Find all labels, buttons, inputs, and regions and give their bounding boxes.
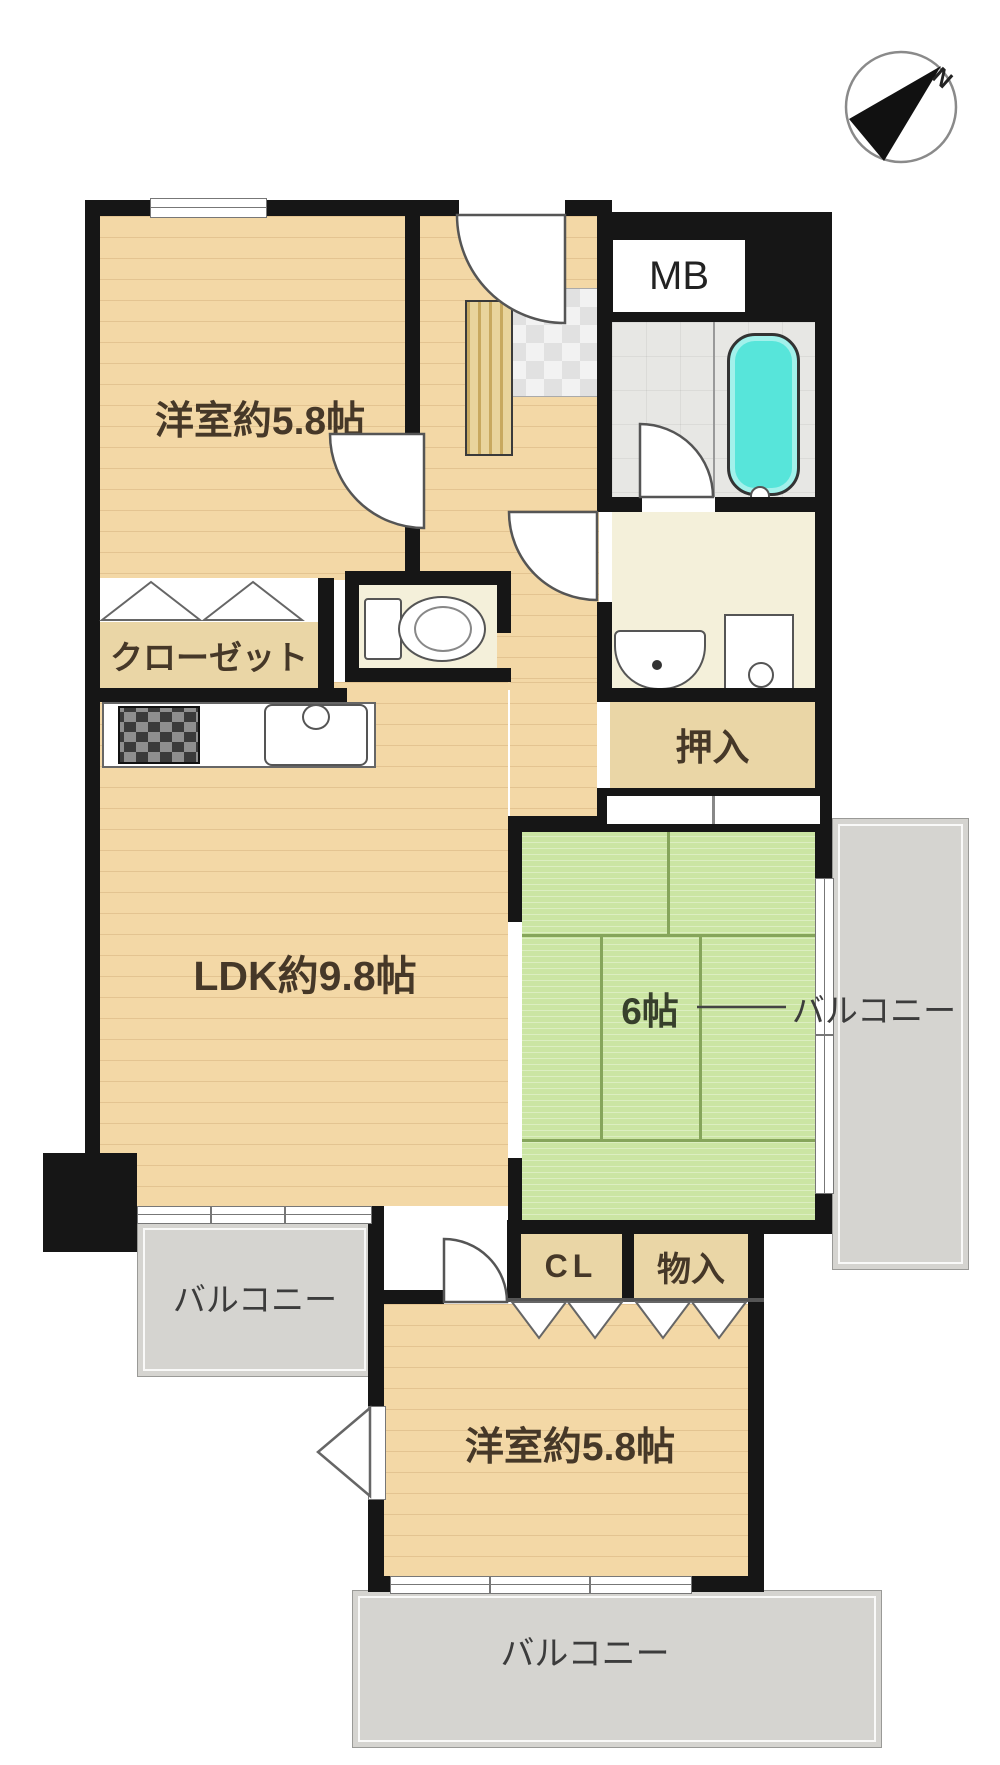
compass-needle (849, 66, 941, 161)
window-tatami-balcony (815, 878, 834, 1194)
toilet-tank (364, 598, 402, 660)
wall (597, 322, 612, 512)
room-storage-label: 物入 (634, 1234, 748, 1298)
compass-circle (846, 52, 956, 162)
balcony-bottom-label: バルコニー (420, 1625, 750, 1675)
tatami-grid-line (699, 935, 702, 1141)
washing-machine-drain (748, 662, 774, 688)
wall (508, 816, 610, 832)
bathtub (727, 333, 800, 496)
wall (690, 1576, 764, 1592)
wall (748, 1220, 764, 1592)
tatami-grid-line (522, 1139, 815, 1142)
room-oshiire-label: 押入 (610, 700, 815, 788)
wall (597, 602, 612, 690)
balcony-left-label: バルコニー (145, 1272, 365, 1322)
room-cl-label: CL (520, 1234, 622, 1298)
wall (100, 1206, 140, 1222)
fusuma-divider (712, 796, 715, 824)
tatami-grid-line (600, 935, 603, 1141)
wall (368, 1290, 384, 1410)
closet-sill-line (507, 1298, 764, 1302)
window-bedroom-bottom-casement (368, 1406, 386, 1500)
door-arc-bedroom-bottom (444, 1239, 507, 1302)
wall (405, 200, 459, 216)
wall (508, 1220, 832, 1234)
closet-bifold-band (100, 578, 318, 622)
balcony-right (832, 818, 969, 1270)
window-ldk-balcony (137, 1206, 372, 1224)
corridor-floor (510, 682, 597, 830)
wall (345, 571, 359, 682)
toilet-seat (414, 606, 472, 652)
wall (368, 1290, 444, 1304)
kitchen-faucet (302, 704, 330, 730)
wall (508, 830, 522, 922)
genkan-tile (507, 288, 602, 397)
structural-column (43, 1153, 137, 1252)
window-bedroom-top (150, 198, 267, 218)
window-bedroom-bottom-balcony (390, 1576, 692, 1594)
room-tatami-label: 6帖 (600, 984, 700, 1032)
floor-plan: 洋室約5.8帖 MB クローゼット 押入 LDK約9.8帖 6帖 バルコニー バ… (0, 0, 1000, 1765)
balcony-right-label: バルコニー (778, 986, 970, 1030)
stove (118, 706, 200, 764)
room-bedroom-top-label: 洋室約5.8帖 (100, 392, 420, 444)
compass-north-label: N (927, 62, 958, 94)
wall (497, 571, 511, 633)
casement-window-triangle (318, 1408, 370, 1496)
shoe-cabinet (465, 300, 513, 456)
tatami-grid-line (667, 830, 670, 936)
room-bedroom-bottom-label: 洋室約5.8帖 (390, 1418, 750, 1470)
bathroom-divider-line (713, 322, 715, 497)
wall (345, 571, 511, 585)
room-ldk-label: LDK約9.8帖 (115, 945, 495, 999)
compass: N (846, 52, 958, 162)
wall (345, 668, 511, 682)
room-closet-label: クローゼット (100, 622, 318, 688)
wall (815, 212, 832, 832)
wall (597, 497, 642, 512)
wall (622, 1234, 634, 1300)
wall (715, 497, 832, 512)
meter-box: MB (613, 240, 745, 312)
wall (815, 832, 832, 882)
washbasin-drain (652, 660, 662, 670)
wall (85, 200, 100, 1222)
wall (85, 688, 347, 702)
wall (318, 578, 334, 690)
